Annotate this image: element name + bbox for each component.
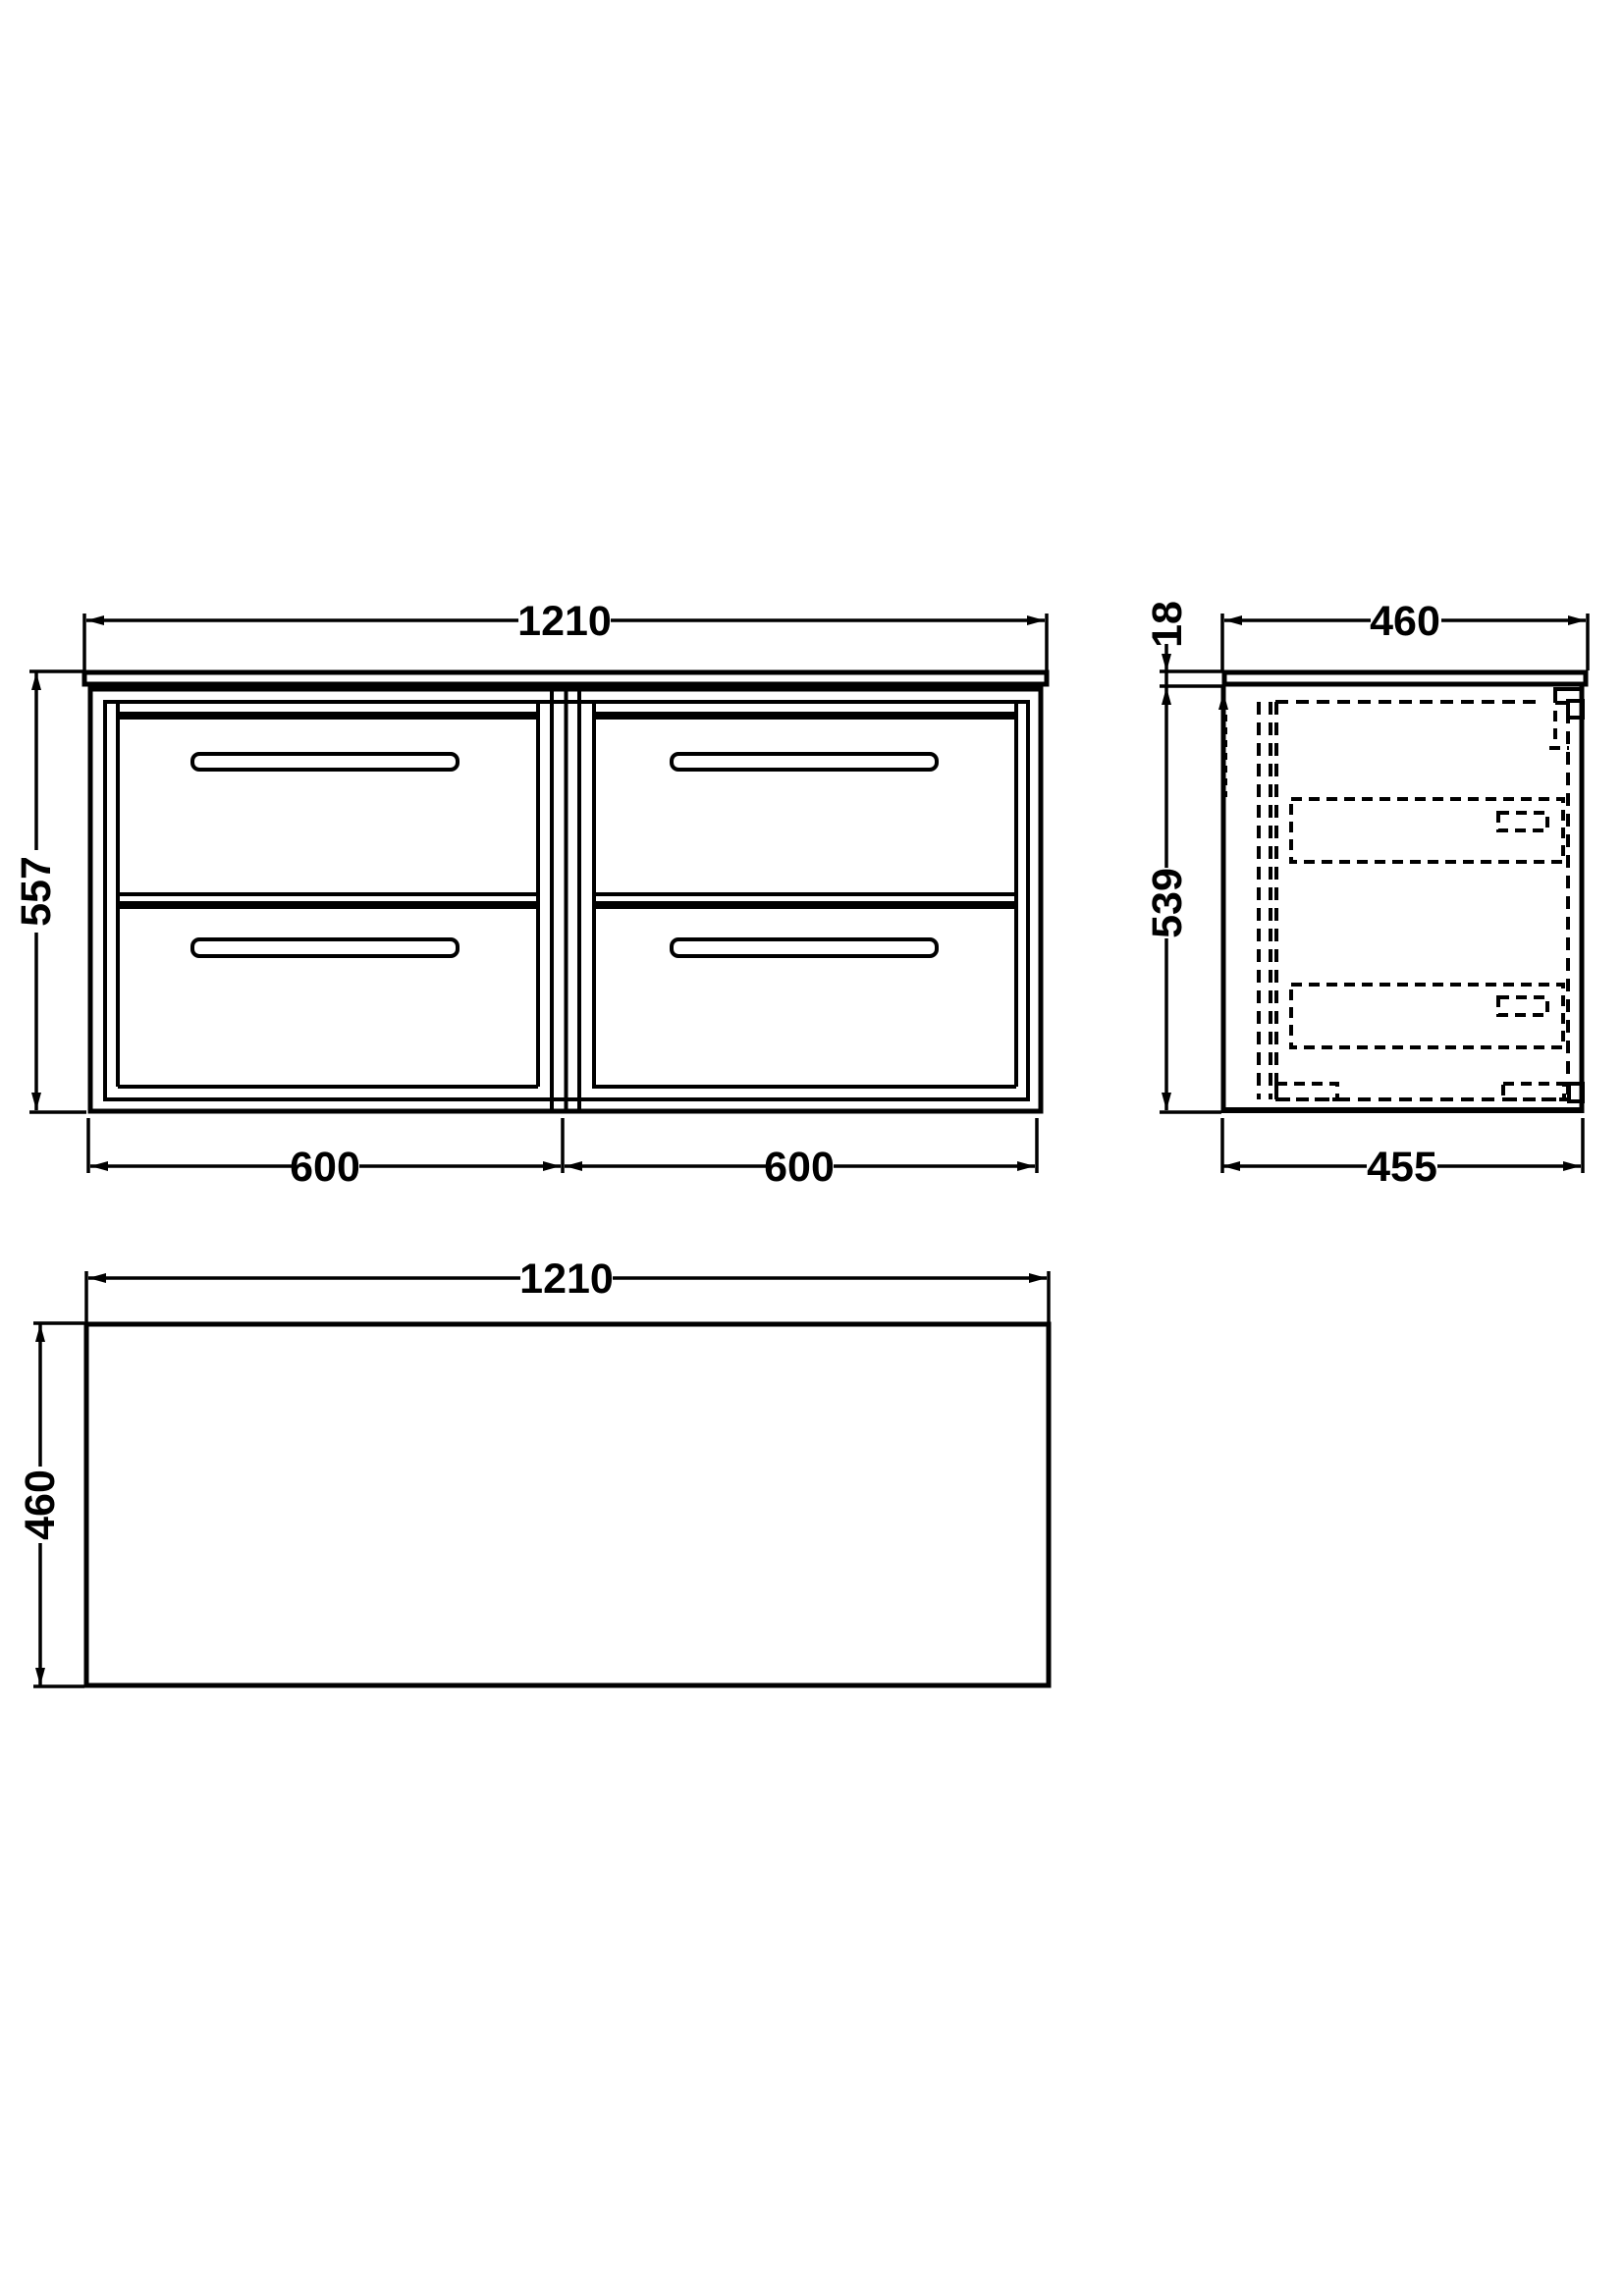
side-depth-label: 460	[1370, 598, 1440, 645]
fixing-detail-annotation	[1218, 692, 1228, 797]
lower-drawer-handle-dashed	[1498, 997, 1547, 1015]
side-depth-dimension: 460	[1222, 598, 1588, 670]
arrowhead-top	[35, 1324, 45, 1342]
arrowhead-left	[88, 1273, 106, 1283]
arrowhead-down	[1162, 654, 1171, 671]
hidden-internals	[1259, 702, 1583, 1101]
back-panel-dashed	[1259, 702, 1271, 1099]
left-section-label: 600	[290, 1144, 360, 1191]
arrowhead-bottom	[35, 1668, 45, 1685]
cabinet-height-label: 539	[1144, 868, 1191, 938]
arrowhead-top	[31, 672, 41, 690]
front-height-label: 557	[13, 856, 60, 927]
handle-bottom-left-drawer	[192, 939, 458, 956]
arrowhead-right	[1029, 1273, 1047, 1283]
center-divider-lines	[552, 691, 579, 1109]
right-runner-dashed	[1503, 1084, 1564, 1099]
handle-top-left-drawer	[192, 754, 458, 770]
arrowhead-bottom	[31, 1093, 41, 1110]
arrowhead-left	[1224, 615, 1242, 625]
front-worktop	[84, 672, 1047, 684]
left-runner-dashed	[1276, 1084, 1337, 1099]
plan-worktop-outline	[86, 1324, 1049, 1685]
plan-width-dimension: 1210	[86, 1255, 1049, 1322]
right-section-label: 600	[764, 1144, 835, 1191]
right-bottom-drawer-edge	[592, 901, 1016, 909]
front-width-dimension: 1210	[84, 598, 1047, 670]
worktop-thickness-label: 18	[1144, 601, 1191, 648]
worktop-thickness-dimension: 18	[1144, 601, 1223, 705]
side-section-view: 460 18 539	[1144, 598, 1588, 1191]
arrowhead-bottom	[1162, 1093, 1171, 1110]
technical-drawing-page: 1210 557	[0, 0, 1623, 2296]
arrowhead-right	[1568, 615, 1586, 625]
cabinet-depth-dimension: 455	[1222, 1118, 1583, 1191]
upper-drawer-handle-dashed	[1498, 813, 1547, 830]
extension-lines	[1160, 671, 1223, 686]
arrowhead-right	[1027, 615, 1045, 625]
left-top-drawer-edge	[118, 712, 538, 720]
cabinet-depth-label: 455	[1367, 1144, 1437, 1191]
handle-top-right-drawer	[672, 754, 937, 770]
front-height-dimension: 557	[13, 671, 86, 1112]
plan-depth-dimension: 460	[17, 1323, 84, 1686]
side-worktop	[1224, 672, 1586, 684]
front-elevation-view: 1210 557	[13, 598, 1047, 1191]
interior-outline-dashed	[1275, 702, 1568, 1099]
cabinet-height-dimension: 539	[1144, 686, 1221, 1112]
plan-view: 1210 460	[17, 1255, 1049, 1686]
left-bottom-drawer-edge	[118, 901, 538, 909]
handle-bottom-right-drawer	[672, 939, 937, 956]
plan-depth-label: 460	[17, 1469, 64, 1540]
vanity-unit-technical-drawing: 1210 557	[0, 0, 1623, 2296]
arrowhead-left	[86, 615, 104, 625]
right-top-drawer-edge	[592, 712, 1016, 720]
front-section-dimensions: 600 600	[88, 1118, 1037, 1191]
fixing-arrow-up-icon	[1218, 692, 1228, 710]
front-width-label: 1210	[517, 598, 612, 645]
plan-width-label: 1210	[519, 1255, 614, 1303]
